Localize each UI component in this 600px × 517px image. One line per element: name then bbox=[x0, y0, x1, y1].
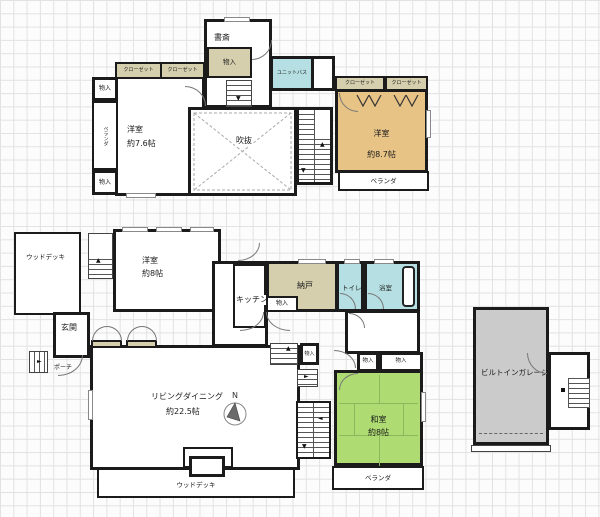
room-label: 洋室 bbox=[127, 125, 143, 135]
window bbox=[122, 227, 148, 232]
closet-label: クローゼット bbox=[167, 68, 197, 73]
stairs-dot bbox=[561, 388, 565, 392]
balcony-2f-left: ベランダ bbox=[92, 101, 118, 170]
closet-label: クローゼット bbox=[391, 81, 421, 86]
storage-washitsu-right: 物入 bbox=[379, 352, 423, 372]
tatami-line bbox=[379, 435, 380, 466]
room-label: 納戸 bbox=[297, 281, 313, 291]
veranda-label: ベランダ bbox=[103, 126, 108, 146]
door-mat-1 bbox=[91, 340, 122, 348]
storage-label: 物入 bbox=[395, 359, 406, 365]
stairs-1f-main bbox=[296, 401, 331, 459]
stairs-arrow: ► bbox=[304, 374, 309, 380]
folding-door-icon bbox=[393, 95, 419, 107]
door-arc bbox=[127, 326, 142, 341]
room-label: 玄関 bbox=[61, 323, 77, 333]
room-size: 約7.6帖 bbox=[127, 139, 156, 149]
closet-2f-left-1: クローゼット bbox=[115, 62, 162, 79]
room-label: 書斎 bbox=[214, 33, 230, 43]
atrium-void: 吹抜 bbox=[188, 107, 297, 196]
floor-plan: 書斎 物入 ▼ ユニットバス 洋室 約7.6帖 クローゼット クローゼット 物入… bbox=[0, 0, 600, 517]
window bbox=[88, 390, 93, 420]
stairs-arrow: ▲ bbox=[96, 258, 101, 264]
room-garage: ビルトインガレージ bbox=[473, 307, 549, 445]
compass-north-label: N bbox=[218, 391, 252, 400]
wood-deck-1f-upper: ウッドデッキ bbox=[14, 232, 81, 315]
storage-2f-left-top: 物入 bbox=[92, 77, 118, 101]
stairs-arrow: ▼ bbox=[236, 96, 241, 102]
stairs-arrow: ▲ bbox=[320, 142, 325, 148]
deck-label: ウッドデッキ bbox=[26, 254, 65, 261]
storage-label: 物入 bbox=[223, 59, 236, 66]
stairs-2f-upper bbox=[226, 80, 252, 107]
room-label: 吹抜 bbox=[235, 136, 253, 146]
tatami-line bbox=[403, 403, 404, 435]
stairs-1f-entry bbox=[88, 233, 113, 279]
door-arc bbox=[142, 326, 157, 341]
window bbox=[374, 259, 394, 264]
storage-2f-left-bottom: 物入 bbox=[92, 170, 118, 195]
storage-under-storeroom: 物入 bbox=[266, 296, 298, 312]
closet-label: クローゼット bbox=[345, 81, 375, 86]
window bbox=[421, 392, 426, 422]
closet-2f-left-2: クローゼット bbox=[160, 62, 205, 79]
room-label: 洋室 bbox=[142, 256, 158, 266]
atrium-dashed-x bbox=[191, 110, 294, 193]
stair-treads bbox=[314, 403, 329, 457]
window bbox=[190, 227, 214, 232]
compass-needle-icon bbox=[220, 400, 250, 430]
closet-2f-bath-side bbox=[311, 56, 335, 91]
room-label: ユニットバス bbox=[277, 71, 307, 76]
storage-label: 物入 bbox=[276, 301, 288, 307]
window bbox=[156, 227, 182, 232]
stairs-arrow: ◄ bbox=[318, 416, 323, 422]
stairs-arrow: ▼ bbox=[301, 168, 306, 174]
storage-label: 物入 bbox=[99, 86, 111, 92]
room-size: 約8帖 bbox=[142, 269, 163, 279]
deck-label: ウッドデッキ bbox=[177, 482, 216, 489]
storage-stair-hall: 物入 bbox=[300, 343, 319, 365]
tatami-line bbox=[379, 375, 380, 403]
room-size: 約8.7帖 bbox=[367, 150, 396, 160]
room-label: リビングダイニング bbox=[151, 392, 223, 402]
veranda-1f: ベランダ bbox=[332, 466, 424, 490]
folding-door-icon bbox=[356, 95, 382, 107]
storage-label: 物入 bbox=[362, 359, 373, 365]
porch-label: ポーチ bbox=[54, 364, 72, 371]
door-arc bbox=[92, 326, 107, 341]
storage-label: 物入 bbox=[304, 352, 314, 357]
room-kitchen: キッチン bbox=[212, 261, 268, 347]
closet-label: クローゼット bbox=[123, 68, 153, 73]
veranda-label: ベランダ bbox=[371, 178, 397, 185]
room-label: キッチン bbox=[236, 295, 268, 305]
compass: N bbox=[218, 391, 252, 434]
stairs-arrow: ▲ bbox=[286, 346, 291, 352]
deck-step-inner bbox=[189, 456, 225, 477]
door-arc bbox=[107, 326, 122, 341]
room-size: 約8帖 bbox=[368, 428, 389, 438]
room-label: 和室 bbox=[371, 415, 387, 425]
tatami-line bbox=[354, 403, 355, 435]
room-size: 約22.5帖 bbox=[166, 407, 200, 417]
room-western-1f: 洋室 約8帖 bbox=[113, 229, 221, 312]
door-arc bbox=[266, 312, 290, 331]
stair-treads bbox=[568, 378, 590, 408]
window bbox=[126, 193, 156, 198]
room-label: トイレ bbox=[342, 285, 362, 293]
bathtub bbox=[402, 266, 415, 307]
garage-dashed-line bbox=[479, 433, 543, 434]
storage-2f-top: 物入 bbox=[207, 47, 252, 78]
window bbox=[298, 259, 326, 264]
room-label: 浴室 bbox=[379, 285, 392, 293]
room-label: 洋室 bbox=[374, 129, 390, 139]
stairs-arrow: ▼ bbox=[302, 444, 307, 450]
window bbox=[224, 17, 250, 22]
stairs-arrow: ► bbox=[37, 359, 42, 365]
storage-washitsu-left: 物入 bbox=[357, 352, 379, 372]
window bbox=[426, 110, 431, 138]
garage-side-room bbox=[548, 352, 590, 430]
room-entrance: 玄関 bbox=[53, 312, 90, 358]
tatami-line bbox=[339, 403, 418, 404]
garage-lower-strip bbox=[471, 445, 551, 452]
veranda-label: ベランダ bbox=[365, 475, 391, 482]
stairs-1f-upper-run bbox=[270, 343, 298, 365]
door-arc-kitchen bbox=[238, 243, 260, 261]
room-unit-bath-2f: ユニットバス bbox=[270, 56, 314, 91]
window bbox=[344, 259, 360, 264]
veranda-2f-right: ベランダ bbox=[338, 171, 429, 191]
storage-label: 物入 bbox=[99, 180, 111, 186]
door-mat-2 bbox=[126, 340, 157, 348]
